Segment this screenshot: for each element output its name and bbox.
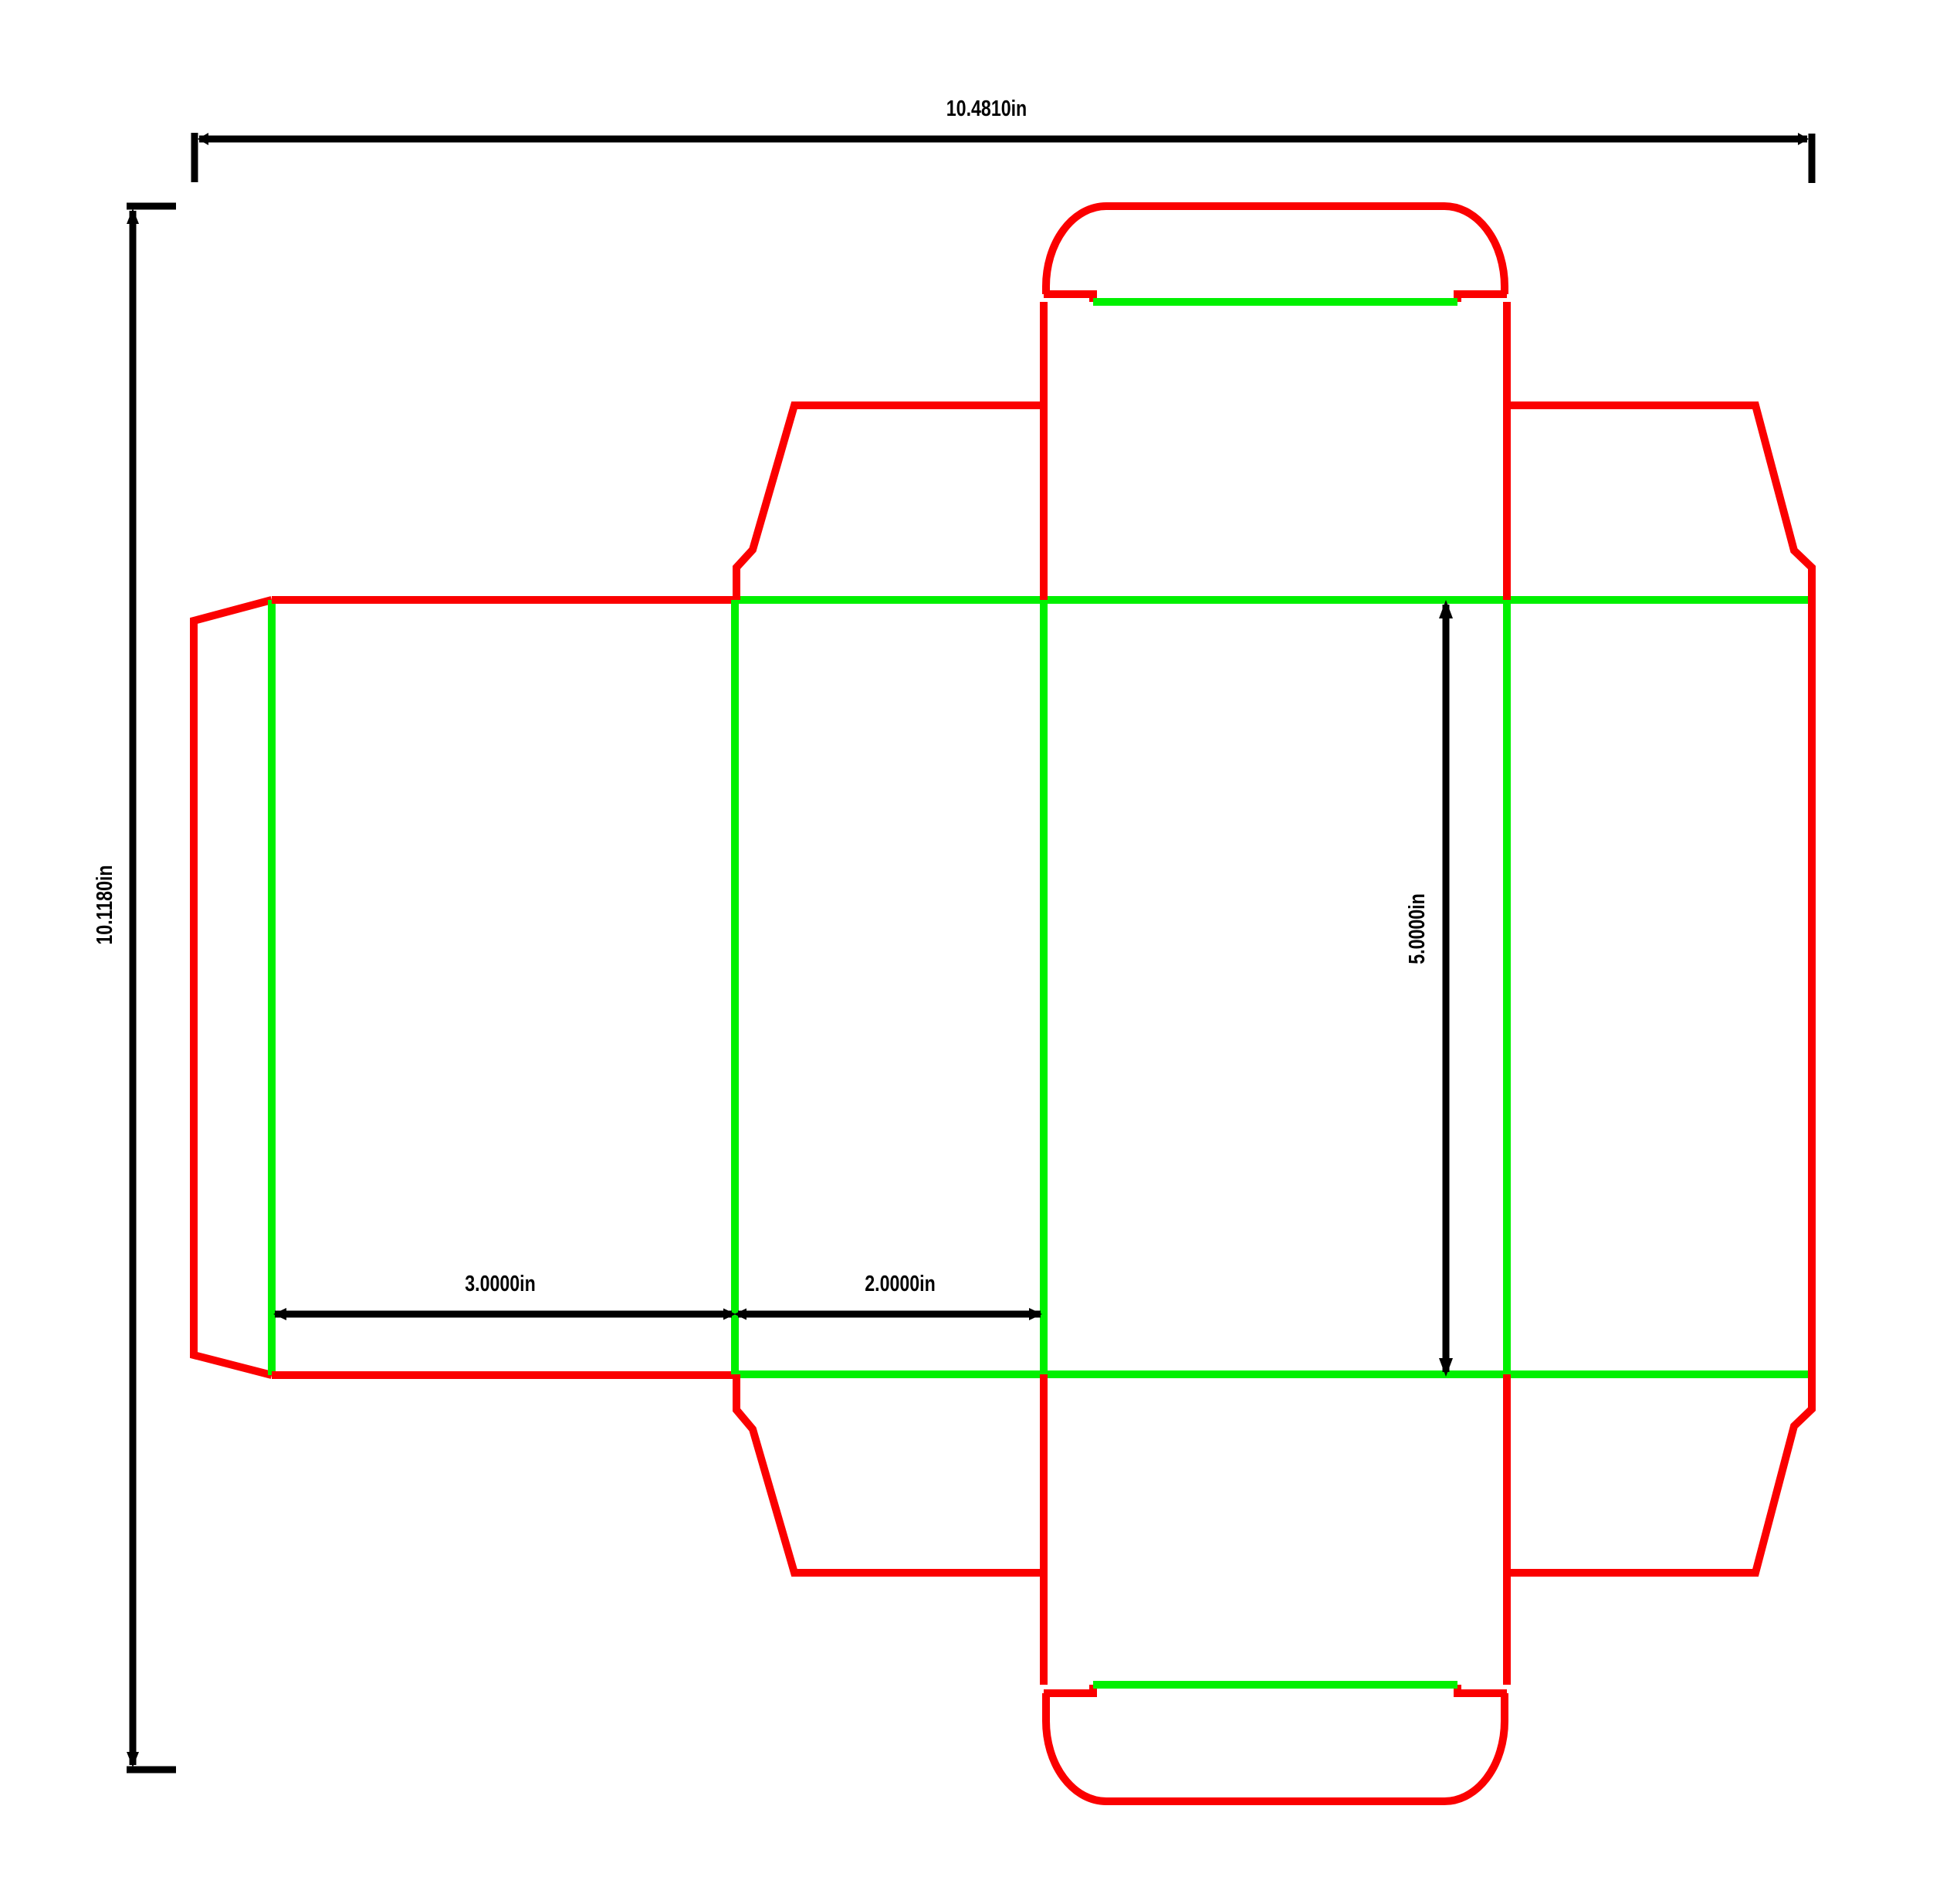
svg-text:5.0000in: 5.0000in — [1403, 893, 1429, 964]
svg-text:3.0000in: 3.0000in — [465, 1270, 536, 1296]
svg-text:10.4810in: 10.4810in — [946, 95, 1027, 120]
svg-text:10.1180in: 10.1180in — [91, 865, 117, 944]
svg-text:2.0000in: 2.0000in — [865, 1270, 936, 1296]
